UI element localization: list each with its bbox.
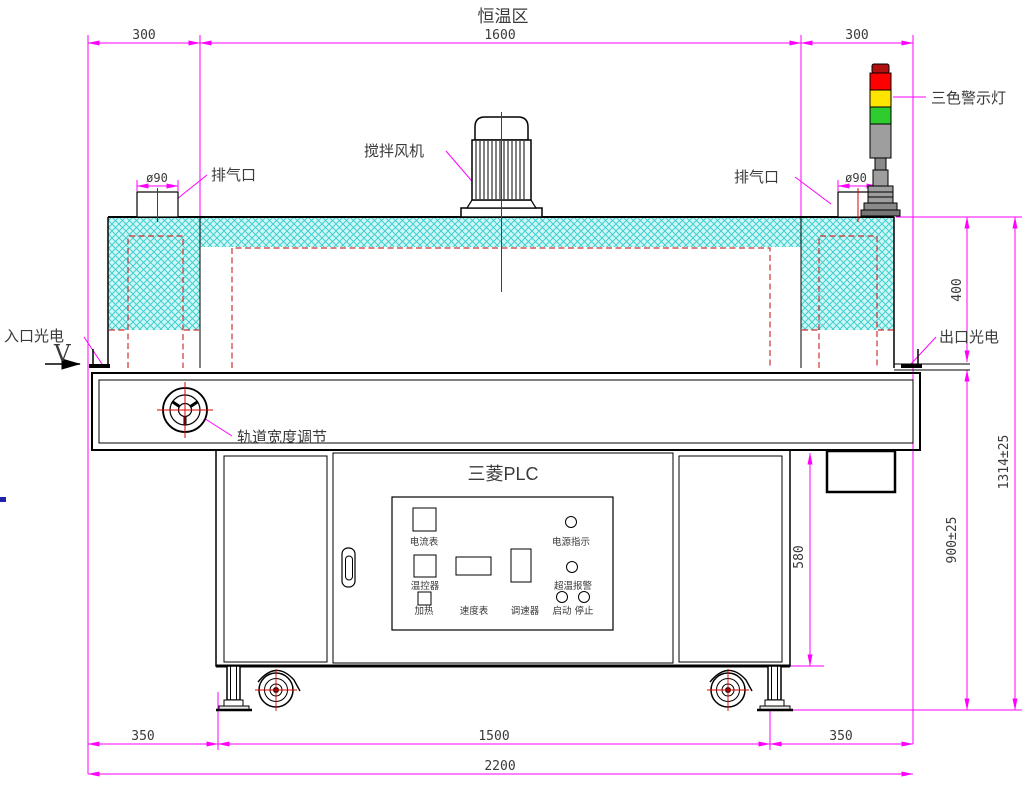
temp-controller-box: [414, 555, 436, 577]
drive-housing-box: [827, 451, 895, 492]
stop-button: [579, 592, 590, 603]
label-stir-fan: 搅拌风机: [364, 143, 424, 160]
light-base: [861, 210, 900, 216]
light-cap: [872, 64, 889, 73]
cabinet-center-door: [333, 453, 673, 663]
label-power-indicator: 电源指示: [552, 536, 590, 548]
dim-bottom-right: 350: [829, 729, 852, 744]
label-exhaust-left: 排气口: [211, 167, 256, 184]
label-outlet-sensor: 出口光电: [939, 329, 999, 346]
plc-title: 三菱PLC: [467, 464, 538, 484]
outlet-sensor-bracket: [894, 349, 970, 370]
light-body: [870, 124, 891, 158]
right-leveling-foot: [757, 666, 793, 710]
dim-top-right: 300: [845, 28, 868, 43]
heat-zone-title: 恒温区: [478, 7, 529, 26]
start-button: [557, 592, 568, 603]
right-caster-wheel: [707, 669, 752, 711]
dim-cabinet-height: 580: [792, 545, 807, 568]
vent-dia-left: ø90: [146, 171, 168, 185]
label-heater: 加热: [414, 605, 434, 617]
light-green-segment: [870, 107, 891, 124]
label-direction-v: V: [53, 341, 71, 367]
light-red-segment: [870, 73, 891, 90]
light-stem: [873, 170, 888, 186]
speed-meter-box: [456, 557, 491, 575]
vent-dia-right: ø90: [845, 171, 867, 185]
left-leveling-foot: [216, 666, 252, 710]
dim-bottom-center: 1500: [478, 729, 509, 744]
power-indicator-lamp: [566, 517, 577, 528]
dim-oven-height: 400: [950, 278, 965, 301]
light-neck: [875, 158, 886, 170]
ammeter-box: [413, 508, 436, 531]
label-speed-meter: 速度表: [460, 605, 489, 617]
label-start: 启动: [552, 605, 571, 617]
dim-top-left: 300: [132, 28, 155, 43]
label-overtemp-alarm: 超温报警: [554, 580, 593, 592]
label-track-width: 轨道宽度调节: [237, 429, 327, 446]
door-handle-grip: [346, 556, 353, 580]
dim-total-height: 1314±25: [997, 435, 1012, 490]
speed-regulator-box: [511, 549, 531, 582]
label-speed-regulator: 调速器: [511, 606, 540, 617]
label-temp-controller: 温控器: [411, 580, 440, 592]
tunnel-oven-drawing: 恒温区 300 1600 300 ø90 ø90 排气口 排气口 搅拌风机 三色…: [0, 0, 1028, 792]
light-flange: [864, 203, 897, 210]
conveyor-table: [92, 373, 920, 450]
label-ammeter: 电流表: [410, 536, 439, 548]
machine-drawing-canvas: 恒温区 300 1600 300 ø90 ø90 排气口 排气口 搅拌风机 三色…: [0, 0, 1028, 792]
cabinet-left-panel: [224, 456, 327, 662]
left-caster-wheel: [255, 669, 300, 711]
label-stop: 停止: [574, 605, 594, 617]
light-mount-nut: [868, 186, 893, 203]
dim-table-height: 900±25: [945, 517, 960, 564]
label-exhaust-right: 排气口: [734, 169, 779, 186]
dim-total-length: 2200: [484, 759, 515, 774]
light-yellow-segment: [870, 90, 891, 107]
label-warning-light: 三色警示灯: [931, 90, 1006, 107]
dim-top-center: 1600: [484, 28, 515, 43]
track-width-handwheel: [157, 382, 213, 438]
cabinet-right-panel: [679, 456, 782, 662]
dim-bottom-left: 350: [131, 729, 154, 744]
overtemp-alarm-lamp: [567, 562, 578, 573]
stray-blue-mark: [0, 497, 6, 502]
inlet-sensor-bracket: [89, 349, 110, 368]
heater-box: [418, 592, 431, 605]
door-handle: [342, 548, 355, 587]
